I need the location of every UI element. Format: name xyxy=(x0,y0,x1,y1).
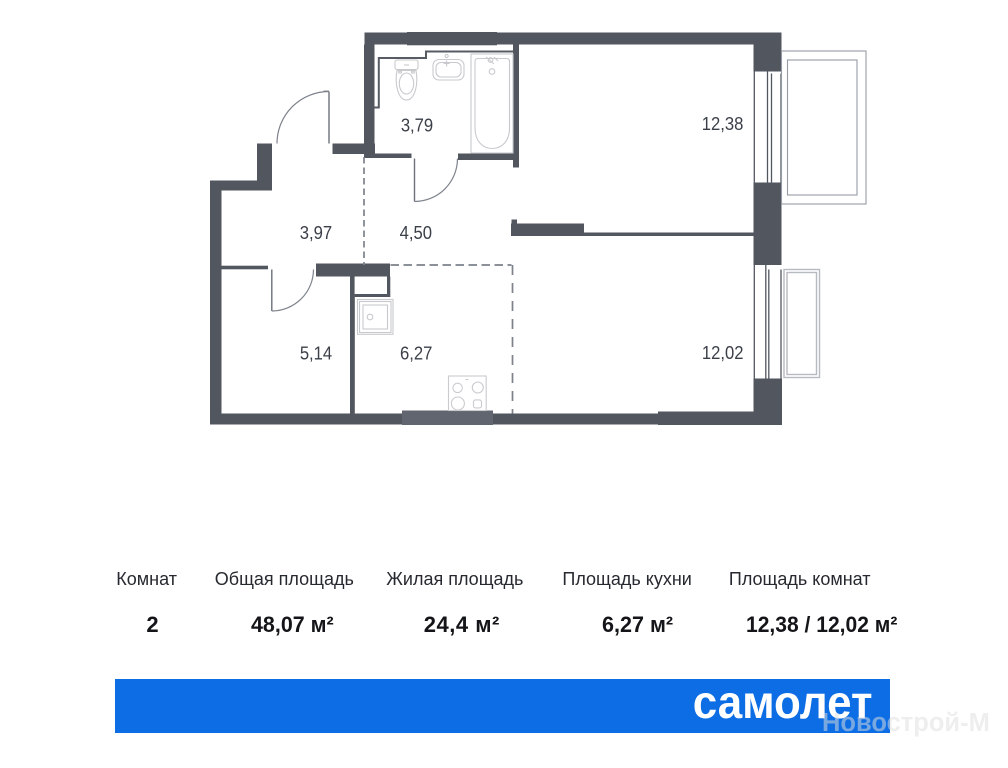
svg-text:4,50: 4,50 xyxy=(400,222,433,243)
svg-text:3,79: 3,79 xyxy=(401,115,433,136)
svg-text:12,38: 12,38 xyxy=(702,113,744,134)
svg-text:5,14: 5,14 xyxy=(300,342,333,363)
svg-text:6,27: 6,27 xyxy=(400,342,432,363)
svg-text:12,02: 12,02 xyxy=(702,342,744,363)
svg-text:3,97: 3,97 xyxy=(300,222,332,243)
